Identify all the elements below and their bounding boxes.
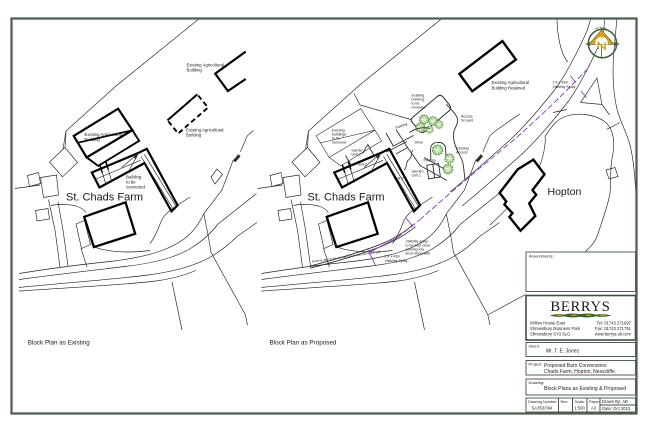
svg-text:Block Plans as Existing & Prop: Block Plans as Existing & Proposed [544,386,626,392]
svg-text:Access: Access [456,151,468,155]
svg-text:Unit 2: Unit 2 [352,153,361,157]
svg-text:level stone wall: level stone wall [406,252,431,256]
svg-text:Existing Agricultural: Existing Agricultural [492,80,530,85]
svg-text:Building: Building [186,133,202,138]
svg-text:Chads Farm, Hopton, Nesscliffe: Chads Farm, Hopton, Nesscliffe. [544,369,616,375]
svg-text:Visibility Splay: Visibility Splay [553,85,576,89]
svg-text:Block Plan as Proposed: Block Plan as Proposed [270,339,337,346]
svg-text:Drawing:: Drawing: [529,380,545,385]
svg-text:BERRYS: BERRYS [550,299,610,315]
svg-text:Visibility Splay: Visibility Splay [385,259,408,263]
svg-text:Shrewsbury Business Park: Shrewsbury Business Park [530,326,581,331]
svg-text:Drawn By: AB: Drawn By: AB [602,399,628,404]
svg-text:SA353/364: SA353/364 [532,406,553,411]
svg-text:St. Chads Farm: St. Chads Farm [308,192,385,204]
svg-text:Block Plan as Existing: Block Plan as Existing [28,339,90,346]
svg-text:Rev:: Rev: [561,400,569,404]
svg-text:Hopton: Hopton [548,186,582,198]
svg-text:Project:: Project: [529,362,543,367]
svg-text:Unit 2: Unit 2 [358,163,367,167]
svg-text:1:500: 1:500 [574,406,585,411]
svg-text:Drawing Number:: Drawing Number: [528,400,558,404]
svg-text:Shrewsbury SY2 6LG: Shrewsbury SY2 6LG [530,332,570,337]
svg-text:Willow House East: Willow House East [530,321,566,326]
svg-text:www.berrys.uk.com: www.berrys.uk.com [595,332,632,337]
svg-text:Scale:: Scale: [575,400,586,404]
svg-text:Parking: Parking [424,159,436,163]
svg-text:Tel: 01743 271697: Tel: 01743 271697 [597,321,632,326]
svg-text:Client:: Client: [529,344,540,349]
svg-text:St. Chads Farm: St. Chads Farm [66,192,143,204]
svg-text:Building: Building [85,137,101,142]
svg-text:Mr. T. E. Jones: Mr. T. E. Jones [546,349,579,355]
svg-text:2.4 x 43m: 2.4 x 43m [553,81,569,85]
svg-text:converted: converted [126,185,145,190]
svg-text:Date: Oct 2013: Date: Oct 2013 [602,406,631,411]
svg-text:for yard: for yard [461,119,473,123]
svg-text:removed: removed [332,141,346,145]
svg-text:Paper:: Paper: [589,400,600,404]
svg-text:A3: A3 [591,406,597,411]
svg-text:Unit 1: Unit 1 [412,174,421,178]
svg-text:Amendments:: Amendments: [529,254,554,259]
svg-text:Fax: 01743 271751: Fax: 01743 271751 [595,326,632,331]
svg-text:Proposed Barn Conversions: Proposed Barn Conversions [544,363,607,369]
svg-text:Building: Building [187,68,203,73]
svg-text:removed: removed [412,106,426,110]
svg-text:2.4 x 43m: 2.4 x 43m [385,255,401,259]
svg-text:Drive: Drive [415,141,423,145]
svg-text:Unit 3: Unit 3 [394,177,403,181]
svg-text:Building Retained: Building Retained [492,86,526,91]
